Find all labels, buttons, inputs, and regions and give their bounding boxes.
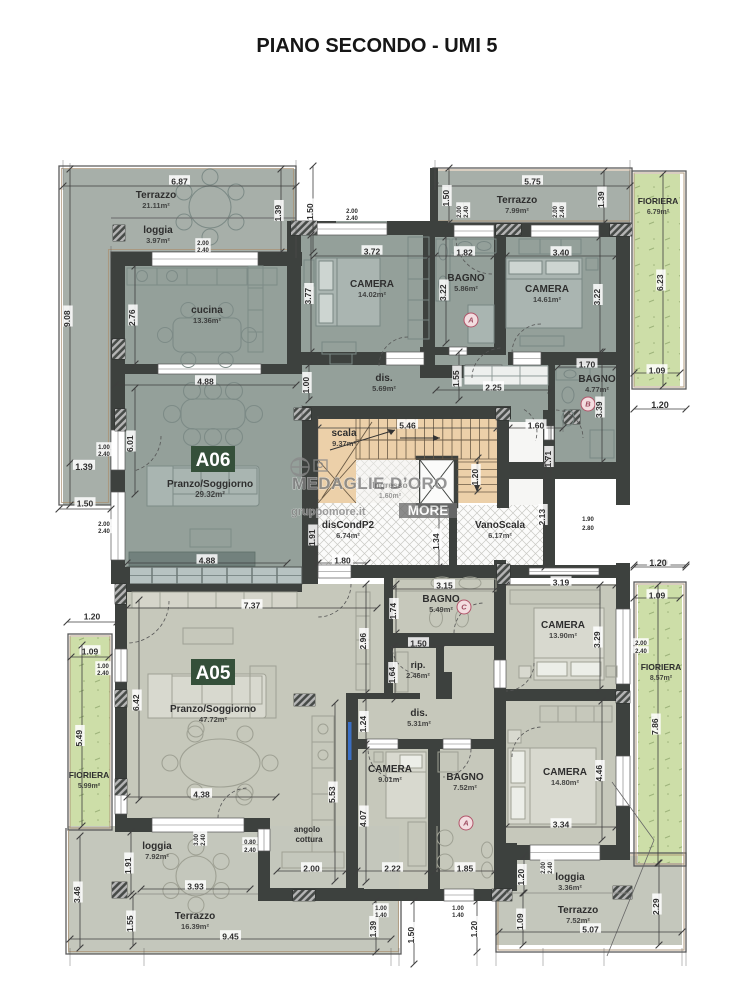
svg-text:2.40: 2.40 xyxy=(346,216,358,222)
svg-text:disCondP2: disCondP2 xyxy=(322,520,375,531)
svg-text:2.46m²: 2.46m² xyxy=(406,671,430,680)
svg-text:1.00: 1.00 xyxy=(301,377,311,394)
svg-text:14.02m²: 14.02m² xyxy=(358,290,386,299)
svg-text:2.22: 2.22 xyxy=(384,864,401,874)
svg-text:Ingresso: Ingresso xyxy=(372,480,407,490)
svg-text:1.34: 1.34 xyxy=(431,533,441,550)
svg-text:5.49m²: 5.49m² xyxy=(429,605,453,614)
svg-text:dis.: dis. xyxy=(375,373,392,384)
svg-text:BAGNO: BAGNO xyxy=(447,273,484,284)
svg-text:13.90m²: 13.90m² xyxy=(549,631,577,640)
svg-text:8.57m²: 8.57m² xyxy=(650,675,673,682)
svg-text:1.74: 1.74 xyxy=(388,603,398,620)
svg-text:A06: A06 xyxy=(196,450,231,471)
svg-text:7.37: 7.37 xyxy=(244,601,261,611)
svg-text:Pranzo/Soggiorno: Pranzo/Soggiorno xyxy=(167,479,253,490)
svg-text:1.70: 1.70 xyxy=(579,360,596,370)
svg-text:1.50: 1.50 xyxy=(406,927,416,944)
svg-text:CAMERA: CAMERA xyxy=(368,764,412,775)
svg-text:9.08: 9.08 xyxy=(62,310,72,327)
svg-text:A: A xyxy=(467,316,473,325)
svg-text:Terrazzo: Terrazzo xyxy=(175,911,215,922)
svg-text:1.50: 1.50 xyxy=(305,203,315,220)
svg-text:1.24: 1.24 xyxy=(358,716,368,733)
svg-text:6.23: 6.23 xyxy=(655,274,665,291)
svg-text:Terrazzo: Terrazzo xyxy=(497,195,537,206)
svg-text:3.15: 3.15 xyxy=(436,581,453,591)
svg-text:4.88: 4.88 xyxy=(197,377,214,387)
svg-text:cucina: cucina xyxy=(191,305,223,316)
svg-text:6.42: 6.42 xyxy=(131,694,141,711)
svg-text:FIORIERA: FIORIERA xyxy=(641,662,682,672)
svg-text:47.72m²: 47.72m² xyxy=(199,715,227,724)
svg-text:1.09: 1.09 xyxy=(649,591,666,601)
svg-text:1.09: 1.09 xyxy=(649,366,666,376)
svg-text:4.38: 4.38 xyxy=(193,790,210,800)
svg-text:1.20: 1.20 xyxy=(469,921,479,938)
svg-text:Terrazzo: Terrazzo xyxy=(136,190,176,201)
svg-text:2.96: 2.96 xyxy=(358,633,368,650)
svg-text:14.80m²: 14.80m² xyxy=(551,778,579,787)
svg-text:9.01m²: 9.01m² xyxy=(378,775,402,784)
svg-text:2.40: 2.40 xyxy=(635,649,647,655)
svg-text:3.77: 3.77 xyxy=(303,288,313,305)
svg-text:A: A xyxy=(462,819,468,828)
svg-text:2.13: 2.13 xyxy=(537,509,547,526)
svg-text:4.88: 4.88 xyxy=(199,556,216,566)
svg-text:1.20: 1.20 xyxy=(649,558,667,568)
svg-text:BAGNO: BAGNO xyxy=(446,772,483,783)
svg-text:1.55: 1.55 xyxy=(125,915,135,932)
svg-text:2.00: 2.00 xyxy=(541,861,547,873)
svg-text:1.40: 1.40 xyxy=(375,913,387,919)
svg-text:1.90: 1.90 xyxy=(582,517,594,523)
svg-text:A05: A05 xyxy=(196,663,231,684)
svg-text:CAMERA: CAMERA xyxy=(525,284,569,295)
svg-text:7.99m²: 7.99m² xyxy=(505,206,529,215)
svg-text:5.86m²: 5.86m² xyxy=(454,284,478,293)
svg-text:21.11m²: 21.11m² xyxy=(142,201,170,210)
svg-text:1.20: 1.20 xyxy=(470,469,480,486)
svg-text:1.80: 1.80 xyxy=(334,556,351,566)
svg-text:1.39: 1.39 xyxy=(596,191,606,208)
svg-text:0.80: 0.80 xyxy=(244,840,256,846)
svg-text:29.32m²: 29.32m² xyxy=(195,490,225,499)
svg-text:1.50: 1.50 xyxy=(77,499,94,509)
svg-text:FIORIERA: FIORIERA xyxy=(638,196,679,206)
svg-text:5.07: 5.07 xyxy=(582,925,599,935)
svg-text:angolo: angolo xyxy=(294,825,320,834)
svg-text:5.53: 5.53 xyxy=(327,786,337,803)
svg-text:BAGNO: BAGNO xyxy=(578,374,615,385)
svg-text:1.20: 1.20 xyxy=(651,400,669,410)
svg-text:5.49: 5.49 xyxy=(74,730,84,747)
svg-text:5.69m²: 5.69m² xyxy=(372,384,396,393)
svg-text:1.50: 1.50 xyxy=(410,639,427,649)
svg-text:5.75: 5.75 xyxy=(524,177,541,187)
svg-text:3.22: 3.22 xyxy=(438,284,448,301)
svg-text:2.25: 2.25 xyxy=(485,383,502,393)
svg-text:2.00: 2.00 xyxy=(553,205,559,217)
svg-text:CAMERA: CAMERA xyxy=(350,279,394,290)
svg-text:MEDAGLIE D’ORO: MEDAGLIE D’ORO xyxy=(292,474,448,493)
svg-text:2.40: 2.40 xyxy=(244,848,256,854)
svg-text:2.40: 2.40 xyxy=(98,529,110,535)
svg-text:1.82: 1.82 xyxy=(456,248,473,258)
svg-text:6.87: 6.87 xyxy=(171,177,188,187)
svg-text:4.77m²: 4.77m² xyxy=(585,385,609,394)
svg-text:7.92m²: 7.92m² xyxy=(145,852,169,861)
svg-text:3.36m²: 3.36m² xyxy=(558,883,582,892)
svg-text:2.40: 2.40 xyxy=(197,248,209,254)
svg-text:14.61m²: 14.61m² xyxy=(533,295,561,304)
svg-text:1.09: 1.09 xyxy=(82,647,99,657)
svg-text:3.00: 3.00 xyxy=(194,833,200,845)
svg-text:3.34: 3.34 xyxy=(553,820,570,830)
svg-text:3.29: 3.29 xyxy=(592,631,602,648)
svg-text:3.39: 3.39 xyxy=(594,401,604,418)
svg-text:1.20: 1.20 xyxy=(84,612,101,622)
svg-text:1.91: 1.91 xyxy=(307,529,317,546)
svg-text:5.31m²: 5.31m² xyxy=(407,719,431,728)
svg-text:CAMERA: CAMERA xyxy=(541,620,585,631)
svg-text:MORE: MORE xyxy=(408,503,449,518)
svg-text:2.40: 2.40 xyxy=(98,452,110,458)
svg-text:BAGNO: BAGNO xyxy=(422,594,459,605)
svg-text:2.00: 2.00 xyxy=(303,864,320,874)
svg-text:B: B xyxy=(585,400,591,409)
svg-text:6.01: 6.01 xyxy=(125,435,135,452)
svg-text:loggia: loggia xyxy=(143,225,173,236)
svg-text:1.40: 1.40 xyxy=(452,913,464,919)
svg-text:CAMERA: CAMERA xyxy=(543,767,587,778)
svg-text:2.29: 2.29 xyxy=(651,898,661,915)
svg-text:5.99m²: 5.99m² xyxy=(78,783,101,790)
svg-text:1.64: 1.64 xyxy=(387,667,397,684)
svg-text:1.50: 1.50 xyxy=(441,190,451,207)
svg-text:2.40: 2.40 xyxy=(560,205,566,217)
svg-text:Terrazzo: Terrazzo xyxy=(558,905,598,916)
svg-text:1.60m²: 1.60m² xyxy=(379,493,402,500)
svg-text:6.74m²: 6.74m² xyxy=(336,531,360,540)
svg-text:1.09: 1.09 xyxy=(515,913,525,930)
svg-text:2.40: 2.40 xyxy=(464,205,470,217)
svg-text:1.39: 1.39 xyxy=(273,205,283,222)
svg-text:1.20: 1.20 xyxy=(516,869,526,886)
svg-text:3.22: 3.22 xyxy=(592,289,602,306)
svg-text:1.60: 1.60 xyxy=(528,421,545,431)
svg-text:cottura: cottura xyxy=(295,835,323,844)
svg-text:3.97m²: 3.97m² xyxy=(146,236,170,245)
svg-text:dis.: dis. xyxy=(410,708,427,719)
svg-text:loggia: loggia xyxy=(555,872,585,883)
svg-text:1.39: 1.39 xyxy=(75,462,93,472)
svg-text:VanoScala: VanoScala xyxy=(475,520,525,531)
svg-text:9.45: 9.45 xyxy=(222,932,239,942)
svg-text:2.00: 2.00 xyxy=(635,641,647,647)
svg-text:rip.: rip. xyxy=(411,660,426,671)
svg-text:4.07: 4.07 xyxy=(358,810,368,827)
svg-text:3.19: 3.19 xyxy=(553,578,570,588)
svg-text:13.36m²: 13.36m² xyxy=(193,316,221,325)
svg-text:scala: scala xyxy=(331,428,356,439)
svg-text:2.00: 2.00 xyxy=(457,205,463,217)
svg-text:FIORIERA: FIORIERA xyxy=(69,770,110,780)
svg-text:loggia: loggia xyxy=(142,841,172,852)
svg-text:7.86: 7.86 xyxy=(650,718,660,735)
svg-text:1.39: 1.39 xyxy=(368,921,378,938)
svg-text:3.93: 3.93 xyxy=(187,882,204,892)
svg-text:gruppomore.it: gruppomore.it xyxy=(291,506,366,518)
svg-text:5.46: 5.46 xyxy=(399,421,416,431)
svg-text:3.72: 3.72 xyxy=(364,247,381,257)
svg-text:3.40: 3.40 xyxy=(553,248,570,258)
svg-text:4.46: 4.46 xyxy=(594,765,604,782)
svg-text:7.52m²: 7.52m² xyxy=(453,783,477,792)
svg-text:1.85: 1.85 xyxy=(457,864,474,874)
svg-text:9.37m²: 9.37m² xyxy=(332,439,356,448)
svg-text:6.79m²: 6.79m² xyxy=(647,209,670,216)
svg-text:3.46: 3.46 xyxy=(72,886,82,903)
svg-text:1.91: 1.91 xyxy=(123,857,133,874)
svg-text:2.80: 2.80 xyxy=(582,526,594,532)
svg-text:2.40: 2.40 xyxy=(97,671,109,677)
svg-text:6.17m²: 6.17m² xyxy=(488,531,512,540)
svg-text:2.40: 2.40 xyxy=(548,861,554,873)
svg-text:2.76: 2.76 xyxy=(127,309,137,326)
svg-text:PIANO SECONDO - UMI 5: PIANO SECONDO - UMI 5 xyxy=(256,35,497,57)
svg-text:C: C xyxy=(461,603,467,612)
svg-text:2.40: 2.40 xyxy=(201,833,207,845)
svg-text:16.39m²: 16.39m² xyxy=(181,922,209,931)
svg-text:Pranzo/Soggiorno: Pranzo/Soggiorno xyxy=(170,704,256,715)
svg-text:1.55: 1.55 xyxy=(451,370,461,387)
